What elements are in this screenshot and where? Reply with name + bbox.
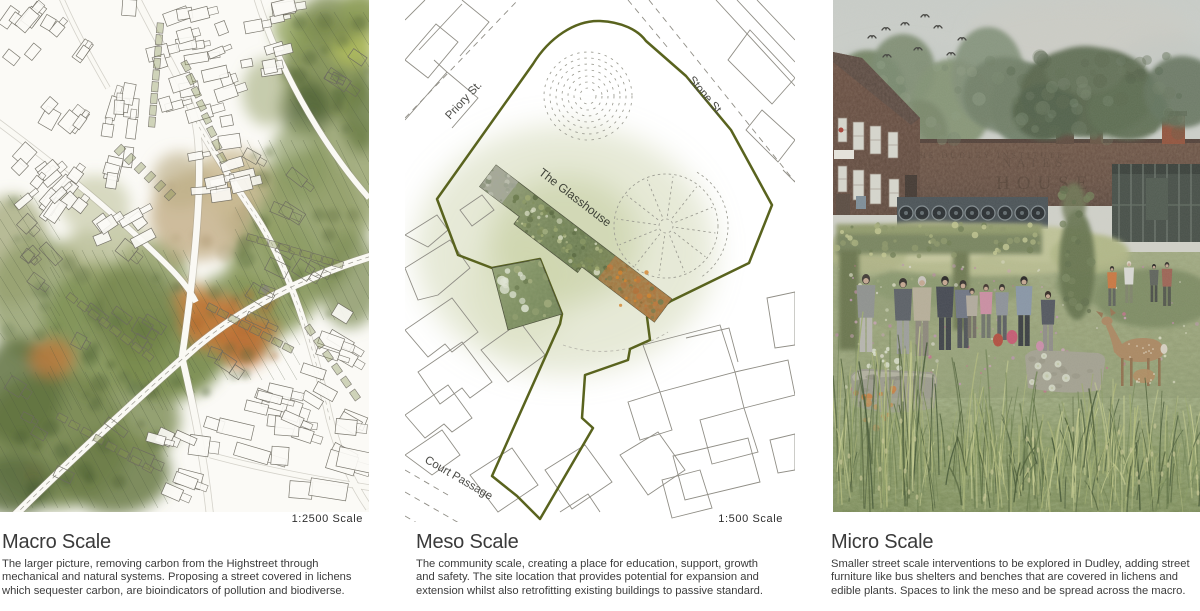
svg-text:Stone St.: Stone St. — [686, 74, 726, 118]
svg-text:Court Passage: Court Passage — [423, 454, 495, 502]
